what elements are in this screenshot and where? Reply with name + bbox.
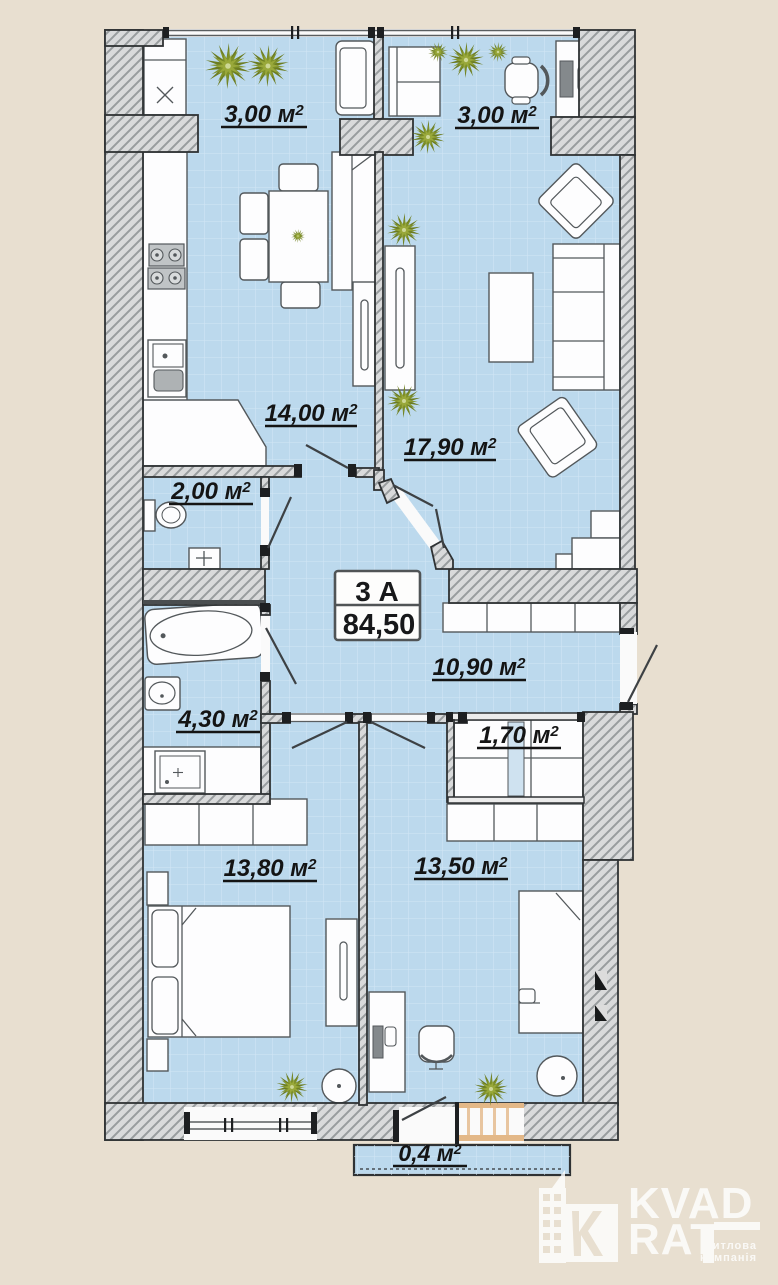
- svg-text:10,90 м2: 10,90 м2: [433, 654, 526, 681]
- svg-text:3 А: 3 А: [355, 576, 399, 607]
- svg-text:компанія: компанія: [700, 1252, 757, 1264]
- svg-text:3,00 м2: 3,00 м2: [457, 102, 537, 129]
- svg-text:4,30 м2: 4,30 м2: [177, 706, 258, 733]
- svg-text:13,50 м2: 13,50 м2: [415, 853, 508, 880]
- svg-text:0,4 м2: 0,4 м2: [398, 1140, 461, 1166]
- svg-text:17,90 м2: 17,90 м2: [404, 434, 497, 461]
- svg-text:3,00 м2: 3,00 м2: [224, 101, 304, 128]
- svg-text:1,70 м2: 1,70 м2: [479, 722, 559, 749]
- svg-text:житлова: житлова: [703, 1240, 757, 1252]
- svg-text:14,00 м2: 14,00 м2: [265, 400, 358, 427]
- svg-text:2,00 м2: 2,00 м2: [170, 478, 251, 505]
- svg-text:84,50: 84,50: [343, 609, 416, 641]
- svg-text:13,80 м2: 13,80 м2: [224, 855, 317, 882]
